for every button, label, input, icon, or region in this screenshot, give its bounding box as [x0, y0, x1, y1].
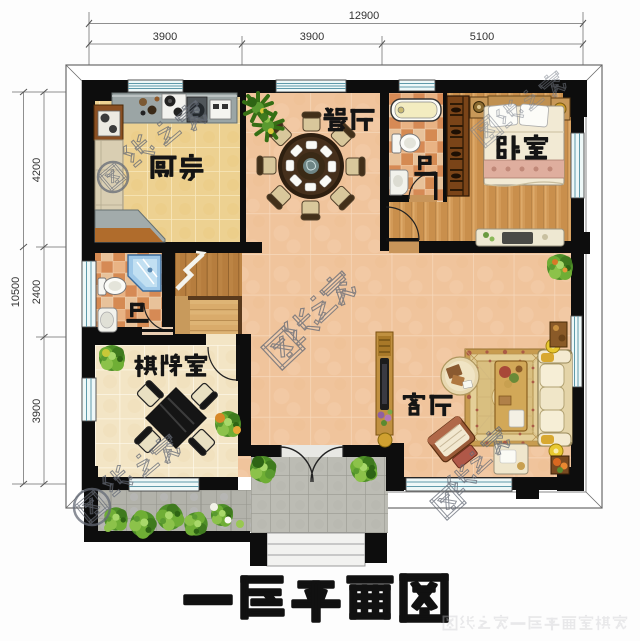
svg-text:2400: 2400 [31, 280, 43, 304]
svg-text:5100: 5100 [470, 31, 494, 43]
svg-text:3900: 3900 [300, 31, 324, 43]
svg-text:10500: 10500 [10, 277, 22, 308]
svg-text:12900: 12900 [349, 10, 380, 22]
svg-text:3900: 3900 [31, 399, 43, 423]
svg-text:4200: 4200 [31, 158, 43, 182]
svg-text:3900: 3900 [153, 31, 177, 43]
